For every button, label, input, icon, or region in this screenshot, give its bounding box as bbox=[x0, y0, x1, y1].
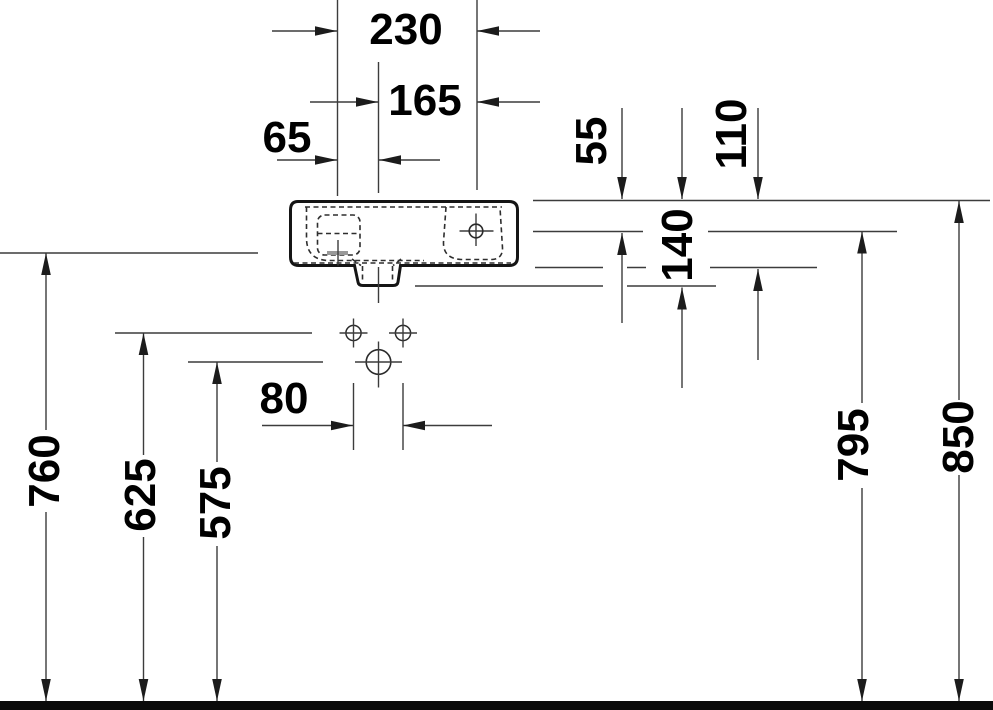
dim-label-110: 110 bbox=[710, 99, 754, 170]
dim-label-760: 760 bbox=[23, 434, 67, 507]
dim-label-230: 230 bbox=[369, 8, 442, 52]
dim-label-165: 165 bbox=[388, 79, 461, 123]
dim-label-850: 850 bbox=[937, 400, 981, 473]
floor-line bbox=[0, 701, 993, 710]
dim-label-55: 55 bbox=[570, 117, 614, 166]
basin-outline bbox=[291, 202, 518, 286]
basin-front-view bbox=[291, 202, 518, 304]
drawing-lines bbox=[0, 0, 993, 710]
dim-label-80: 80 bbox=[260, 377, 309, 421]
dim-label-795: 795 bbox=[832, 408, 876, 481]
drain-outlet bbox=[355, 342, 402, 388]
dim-label-625: 625 bbox=[119, 458, 163, 531]
dimension-arrows bbox=[46, 31, 959, 701]
dim-label-575: 575 bbox=[194, 466, 238, 539]
dim-label-65: 65 bbox=[263, 116, 312, 160]
dim-label-140: 140 bbox=[656, 208, 700, 281]
technical-drawing: 230 165 65 55 110 140 80 760 625 575 795… bbox=[0, 0, 993, 710]
